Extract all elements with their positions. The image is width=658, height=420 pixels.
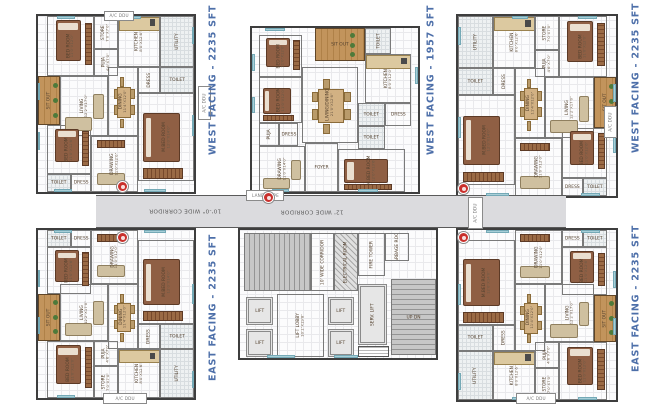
dining-chair [120, 119, 124, 128]
window-sill [54, 230, 73, 233]
room-utility: UTILITY [160, 16, 194, 67]
room-label: LIVING12'2"X17'0" [554, 300, 585, 326]
room-label: BED ROOM11'0"X12'0" [55, 34, 87, 59]
room-label: PUJA4'6"X7'0" [541, 349, 554, 361]
room-label: STORE7'0"X7'0" [539, 378, 556, 390]
wardrobe [263, 115, 294, 121]
window-sill [458, 284, 461, 304]
window-sill [38, 270, 40, 287]
room-m-bed-room: M.BED ROOM12'0"X14'0" [138, 240, 194, 324]
plant [350, 33, 355, 38]
room-bed-room: BED ROOM11'0"X12'0" [259, 35, 302, 78]
room-label: DRESS [391, 109, 405, 121]
room-foyer: FOYER [305, 143, 338, 192]
room-dress: DRESS [138, 324, 160, 349]
room-dress: DRESS [71, 174, 91, 192]
room-serv-lift: SERV. LIFT [358, 284, 387, 345]
plant [53, 113, 58, 118]
corridor-label: 10'-0" WIDE CORRIDOR [133, 208, 237, 214]
room-10-wide-corridor: 10' WIDE CORRIDOR [311, 233, 335, 292]
room-label: SERV. LIFT [358, 308, 387, 321]
room-label: DRESS [497, 332, 510, 343]
room-bed-room: BED ROOM11'0"X12'6" [47, 247, 91, 294]
window-sill [38, 132, 40, 150]
room-label: M.BED ROOM12'0"X13'6" [360, 153, 382, 188]
window-sill [458, 373, 461, 390]
room-toilet: TOILET [458, 68, 493, 95]
window-sill [415, 67, 418, 83]
room-drawing: DRAWING11'0"X12'0" [515, 230, 562, 284]
unit-label: EAST FACING - 2235 SFT [628, 226, 644, 370]
room-sit-out: SIT OUT [315, 28, 365, 61]
room-label: TOILET [53, 234, 65, 242]
room-lift-lobby: LIFT LOBBY10'1"X19'8" [277, 294, 324, 357]
stove [150, 353, 156, 360]
room-label: PUJA4'6"X7'0" [99, 348, 112, 360]
room-utility: UTILITY [160, 349, 194, 398]
room-label: STORE7'0"X7'0" [97, 27, 114, 39]
unit-label: WEST FACING - 1957 SFT [423, 8, 439, 152]
room-sit-out: SIT OUT [38, 76, 60, 125]
dining-chair [527, 79, 532, 89]
room-lift: LIFT [328, 297, 353, 325]
room-label: KITCHEN8'0"X12'6" [500, 31, 528, 53]
room-label: UTILITY [462, 366, 488, 384]
room-bed-room: BED ROOM11'0"X12'6" [562, 247, 606, 295]
room-drawing: DRAWING11'0"X12'0" [91, 136, 138, 192]
room-dress: DRESS [562, 230, 583, 247]
dining-chair [323, 79, 330, 89]
room-store: STORE7'0"X7'0" [94, 16, 117, 49]
room-up-dn: UP DN [391, 279, 436, 356]
bed-pillow [570, 349, 590, 356]
plant [350, 43, 355, 48]
room-label: PUJA4'6"X7'0" [99, 57, 112, 69]
dining-chair [527, 334, 532, 343]
window-sill [54, 189, 73, 192]
bed-pillow [570, 24, 590, 31]
room-dress: DRESS [493, 325, 515, 351]
room-label: ELECTRICAL ROOM [334, 256, 358, 268]
room-toilet: TOILET [365, 28, 392, 54]
room-label: UTILITY [164, 365, 190, 383]
room-garbage-room: GARBAGE ROOM [385, 233, 409, 261]
unit-east-2235-b: BED ROOM11'0"X12'0"STORE7'0"X7'0"PUJA4'6… [456, 228, 618, 402]
room-label: LIFT [336, 337, 347, 349]
room-living-dining: LIVING/DINING21'0"X12'6" [302, 67, 358, 142]
unit-label: WEST FACING - 2235 SFT [628, 6, 644, 150]
room-label: BED ROOM11'0"X12'0" [268, 89, 292, 112]
window-sill [38, 83, 40, 101]
room-label: TOILET [371, 34, 384, 48]
window-sill [57, 16, 76, 19]
room-label: PUJA4'6"X7'0" [540, 58, 554, 70]
wardrobe [82, 252, 89, 286]
window-sill [486, 230, 508, 233]
room-bed-room: BED ROOM11'0"X12'0" [47, 341, 94, 398]
room-dining: DINING11'4"X12'0" [108, 284, 138, 350]
dining-chair [120, 294, 124, 303]
window-sill [581, 193, 600, 196]
room-fire-tower: FIRE TOWER [358, 233, 385, 277]
deck-box-a-c-ddu: A/C DDU [604, 106, 617, 138]
room-label: GARBAGE ROOM [390, 241, 404, 253]
room-label: DINING11'4"X12'0" [108, 94, 138, 109]
room-label: BED ROOM11'0"X12'0" [56, 357, 86, 382]
room-toilet: TOILET [458, 325, 493, 351]
room-label: UP DN [402, 296, 426, 337]
room-label: BED ROOM11'0"X12'6" [572, 259, 597, 282]
room-utility: UTILITY [458, 16, 493, 68]
deck-box-a-c-ddu: A/C DDU [104, 11, 134, 21]
room-dining: DINING11'4"X12'0" [108, 67, 138, 136]
room-toilet: TOILET [358, 126, 385, 149]
entrance-marker [117, 232, 128, 243]
room-m-bed-room: M.BED ROOM12'0"X14'0" [458, 240, 515, 325]
room-lift: LIFT [246, 297, 273, 325]
dining-chair [527, 121, 532, 131]
room-label: DRESS [76, 234, 86, 242]
room-label: TOILET [168, 74, 186, 87]
room-label: DRESS [284, 129, 294, 141]
window-sill [334, 355, 358, 358]
window-sill [57, 395, 76, 398]
room-label: BED ROOM11'0"X12'6" [571, 141, 598, 164]
window-sill [613, 318, 616, 335]
room-label: SIT OUT [327, 36, 353, 53]
room-label: BED ROOM11'0"X12'0" [567, 34, 600, 59]
room-label: DRESS [567, 234, 577, 242]
room-label: DRAWING11'0"X12'0" [524, 245, 553, 270]
room-lift: LIFT [328, 329, 353, 357]
room-label: TOILET [365, 109, 379, 121]
wardrobe [463, 312, 503, 322]
room-label: DINING11'4"X12'0" [515, 96, 545, 111]
window-sill [192, 115, 194, 136]
window-sill [358, 189, 378, 192]
room-label: UTILITY [163, 33, 190, 51]
unit-west-1957: BED ROOM11'0"X12'0"SIT OUTTOILETKITCHEN8… [250, 26, 420, 194]
dining-chair [120, 333, 124, 342]
window-sill [613, 84, 616, 102]
unit-west-2235-b: BED ROOM11'0"X12'0"STORE7'0"X7'0"PUJA4'6… [456, 14, 618, 198]
window-sill [192, 284, 194, 304]
room-label: LIVING12'2"X17'0" [69, 300, 99, 325]
stove [150, 19, 156, 26]
room-label: DRESS [497, 76, 511, 87]
room-dress: DRESS [385, 103, 412, 126]
room-label: STORE7'0"X7'0" [538, 27, 556, 39]
room-area [358, 346, 389, 356]
room-label: M.BED ROOM12'0"X14'0" [464, 268, 510, 298]
room-bed-room: BED ROOM11'0"X12'0" [259, 77, 302, 123]
room-label: KITCHEN8'0"X12'0" [375, 67, 401, 91]
unit-label: WEST FACING - 2235 SFT [205, 8, 221, 152]
room-bed-room: BED ROOM11'0"X12'6" [562, 128, 606, 178]
window-sill [144, 189, 166, 192]
room-store: STORE7'0"X7'0" [535, 16, 559, 50]
room-label: TOILET [589, 183, 601, 192]
room-label: DRESS [567, 183, 577, 192]
room-label: KITCHEN8'0"X12'6" [126, 363, 152, 385]
unit-core: LIFTLIFTLIFT LOBBY10'1"X19'8"10' WIDE CO… [238, 228, 438, 360]
room-bed-room: BED ROOM11'0"X12'6" [47, 125, 91, 174]
room-dress: DRESS [138, 67, 160, 93]
room-label: 10' WIDE CORRIDOR [311, 256, 335, 268]
room-toilet: TOILET [358, 103, 385, 126]
room-label: LIFT [336, 305, 347, 317]
room-kitchen: KITCHEN8'0"X12'6" [118, 349, 160, 398]
plant [53, 83, 58, 88]
room-label: LIFT [254, 305, 266, 317]
window-sill [252, 97, 255, 113]
window-sill [613, 271, 616, 288]
room-label: LIVING12'2"X17'0" [553, 95, 586, 121]
tv-unit [520, 143, 549, 152]
wardrobe [293, 40, 300, 70]
plant [53, 300, 58, 305]
entrance-marker [117, 181, 128, 192]
room-label: DRAWING11'0"X12'0" [523, 155, 554, 180]
room-dress: DRESS [493, 68, 515, 95]
window-sill [458, 117, 461, 139]
deck-box-a-c-ddu: A/C DDU [468, 197, 483, 229]
window-sill [38, 317, 40, 334]
room-label: TOILET [589, 234, 601, 242]
room-label: TOILET [365, 132, 379, 144]
room-kitchen: KITCHEN8'0"X12'6" [493, 16, 536, 68]
room-label: BED ROOM11'0"X12'6" [56, 138, 82, 161]
wardrobe [143, 311, 183, 321]
room-label: FIRE TOWER [360, 247, 383, 261]
room-m-bed-room: M.BED ROOM12'0"X14'0" [458, 95, 515, 185]
room-kitchen: KITCHEN8'0"X12'0" [365, 54, 411, 103]
room-m-bed-room: M.BED ROOM12'0"X13'6" [338, 149, 404, 192]
dining-chair [323, 124, 330, 134]
dining-chair [120, 77, 124, 86]
room-label: DINING11'4"X12'0" [108, 309, 138, 324]
room-label: DRAWING11'0"X12'0" [100, 245, 128, 270]
wardrobe [598, 133, 605, 169]
dining-chair [527, 294, 532, 303]
window-sill [581, 230, 600, 233]
window-sill [192, 27, 194, 45]
unit-east-2235-a: BED ROOM11'0"X12'0"STORE7'0"X7'0"PUJA4'6… [36, 228, 196, 400]
window-sill [578, 397, 597, 400]
unit-label: EAST FACING - 2235 SFT [205, 235, 221, 379]
room-label: LIFT LOBBY10'1"X19'8" [284, 313, 317, 338]
stove [401, 58, 407, 65]
room-label: BED ROOM11'0"X12'6" [57, 259, 82, 282]
tv-unit [97, 140, 126, 149]
wardrobe [82, 131, 89, 166]
room-dining: DINING11'4"X12'0" [515, 68, 545, 138]
room-dress: DRESS [279, 123, 299, 146]
wardrobe [463, 172, 503, 183]
room-label: DRESS [76, 179, 86, 188]
room-label: BED ROOM11'0"X12'0" [269, 45, 291, 68]
room-dress: DRESS [562, 178, 583, 196]
room-bed-room: BED ROOM11'0"X12'0" [559, 16, 606, 77]
room-label: DRESS [142, 331, 155, 342]
room-kitchen: KITCHEN8'0"X12'6" [118, 16, 160, 67]
plant [53, 315, 58, 320]
wardrobe [598, 253, 605, 287]
entrance-marker [458, 232, 469, 243]
room-drawing: DRAWING11'0"X12'0" [91, 230, 138, 284]
window-sill [512, 16, 528, 19]
room-living: LIVING12'2"X17'0" [60, 76, 108, 136]
room-label: TOILET [53, 179, 65, 188]
bed-pillow [573, 134, 591, 140]
room-label: DRAWING11'0"X14'0" [270, 157, 294, 181]
unit-west-2235-a: BED ROOM11'0"X12'0"STORE7'0"X7'0"PUJA4'6… [36, 14, 196, 194]
room-label: M.BED ROOM12'0"X14'0" [142, 123, 189, 153]
plant [53, 98, 58, 103]
room-label: TOILET [466, 331, 484, 344]
room-electrical-room: ELECTRICAL ROOM [334, 233, 358, 292]
room-label: LIVING/DINING21'0"X12'6" [310, 90, 350, 120]
room-drawing: DRAWING11'0"X12'0" [515, 138, 562, 196]
window-sill [486, 193, 508, 196]
room-area [244, 233, 311, 292]
room-puja: PUJA [259, 123, 279, 146]
room-label: DRAWING11'0"X12'0" [99, 152, 129, 177]
room-label: DRESS [142, 75, 155, 86]
bed-pillow [347, 162, 354, 180]
room-label: STORE7'0"X7'0" [98, 376, 114, 388]
room-label: KITCHEN8'0"X12'6" [125, 30, 152, 52]
tv-unit [520, 234, 549, 242]
corridor-label: 12' WIDE CORRIDOR [260, 209, 364, 215]
wardrobe [143, 168, 183, 179]
bed-pillow [58, 348, 78, 355]
room-label: PUJA [263, 130, 275, 140]
room-dining: DINING11'4"X12'0" [515, 284, 545, 350]
room-label: LIVING12'2"X17'0" [68, 93, 100, 118]
room-label: TOILET [466, 75, 484, 89]
room-label: DINING11'4"X12'0" [515, 310, 545, 325]
window-sill [252, 54, 255, 70]
stove [525, 20, 531, 27]
room-utility: UTILITY [458, 351, 493, 400]
deck-box-a-c-ddu: A/C DDU [516, 393, 556, 404]
room-label: UTILITY [462, 33, 490, 51]
room-label: M.BED ROOM12'0"X14'0" [143, 267, 188, 297]
room-bed-room: BED ROOM11'0"X12'0" [559, 342, 606, 400]
plant [53, 329, 58, 334]
room-label: TOILET [168, 330, 186, 343]
room-label: FOYER [313, 154, 330, 180]
stove [525, 354, 531, 361]
entrance-marker [263, 192, 274, 203]
room-bed-room: BED ROOM11'0"X12'0" [47, 16, 94, 76]
window-sill [458, 27, 461, 45]
window-sill [578, 16, 597, 19]
room-lift: LIFT [246, 329, 273, 357]
room-label: LIFT [254, 337, 266, 349]
window-sill [267, 355, 294, 358]
plant [350, 52, 355, 57]
room-label: KITCHEN8'0"X12'6" [501, 364, 527, 386]
room-label: M.BED ROOM12'0"X14'0" [462, 125, 510, 155]
room-label: BED ROOM11'0"X12'0" [567, 359, 598, 384]
room-toilet: TOILET [160, 67, 194, 93]
room-m-bed-room: M.BED ROOM12'0"X14'0" [138, 93, 194, 181]
room-sit-out: SIT OUT [38, 294, 60, 341]
room-drawing: DRAWING11'0"X14'0" [259, 146, 305, 192]
entrance-marker [458, 183, 469, 194]
floor-plan-canvas: 10'-0" WIDE CORRIDOR12' WIDE CORRIDORBED… [0, 0, 658, 420]
plant [609, 301, 614, 306]
window-sill [144, 230, 166, 233]
bed-pillow [58, 131, 76, 137]
room-dress: DRESS [71, 230, 91, 247]
room-toilet: TOILET [160, 324, 194, 349]
bed-pillow [58, 23, 78, 30]
sofa [550, 324, 578, 337]
wardrobe [597, 349, 604, 390]
deck-box-a-c-ddu: A/C DDU [103, 393, 147, 404]
wardrobe [85, 347, 92, 388]
window-sill [265, 28, 285, 31]
window-sill [192, 371, 194, 388]
